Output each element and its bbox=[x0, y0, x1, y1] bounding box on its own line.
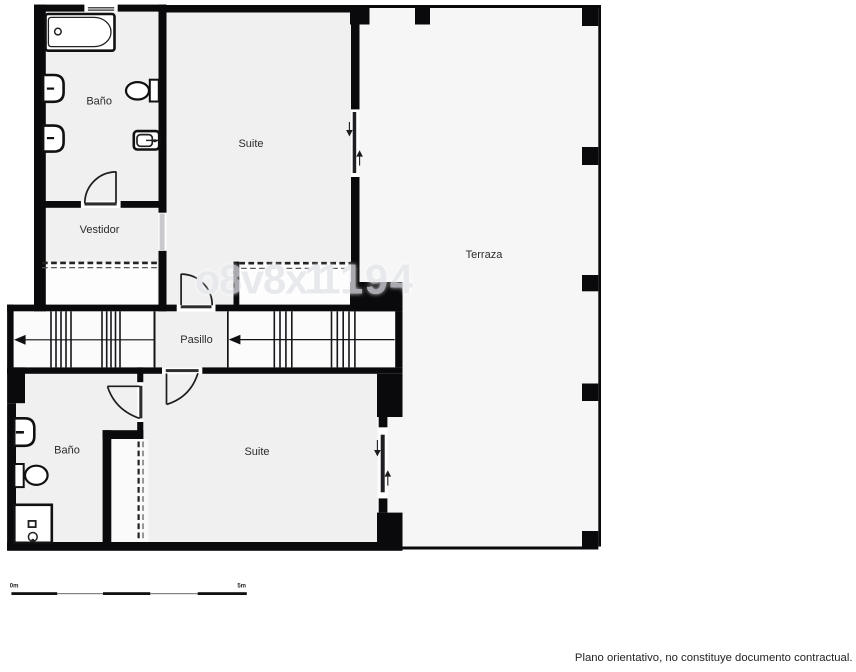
svg-text:Baño: Baño bbox=[86, 96, 112, 108]
svg-text:Plano orientativo, no constitu: Plano orientativo, no constituye documen… bbox=[575, 652, 853, 664]
svg-text:0m: 0m bbox=[10, 584, 19, 590]
svg-text:8: 8 bbox=[263, 256, 286, 303]
svg-text:1: 1 bbox=[317, 256, 340, 303]
svg-text:Vestidor: Vestidor bbox=[80, 224, 120, 236]
svg-text:5m: 5m bbox=[237, 584, 246, 590]
svg-text:Pasillo: Pasillo bbox=[180, 334, 212, 346]
svg-text:Suite: Suite bbox=[238, 138, 263, 150]
svg-text:Terraza: Terraza bbox=[466, 249, 504, 261]
svg-text:Suite: Suite bbox=[244, 446, 269, 458]
svg-text:o: o bbox=[195, 256, 220, 303]
svg-text:Baño: Baño bbox=[54, 445, 80, 457]
svg-text:v: v bbox=[241, 256, 264, 303]
